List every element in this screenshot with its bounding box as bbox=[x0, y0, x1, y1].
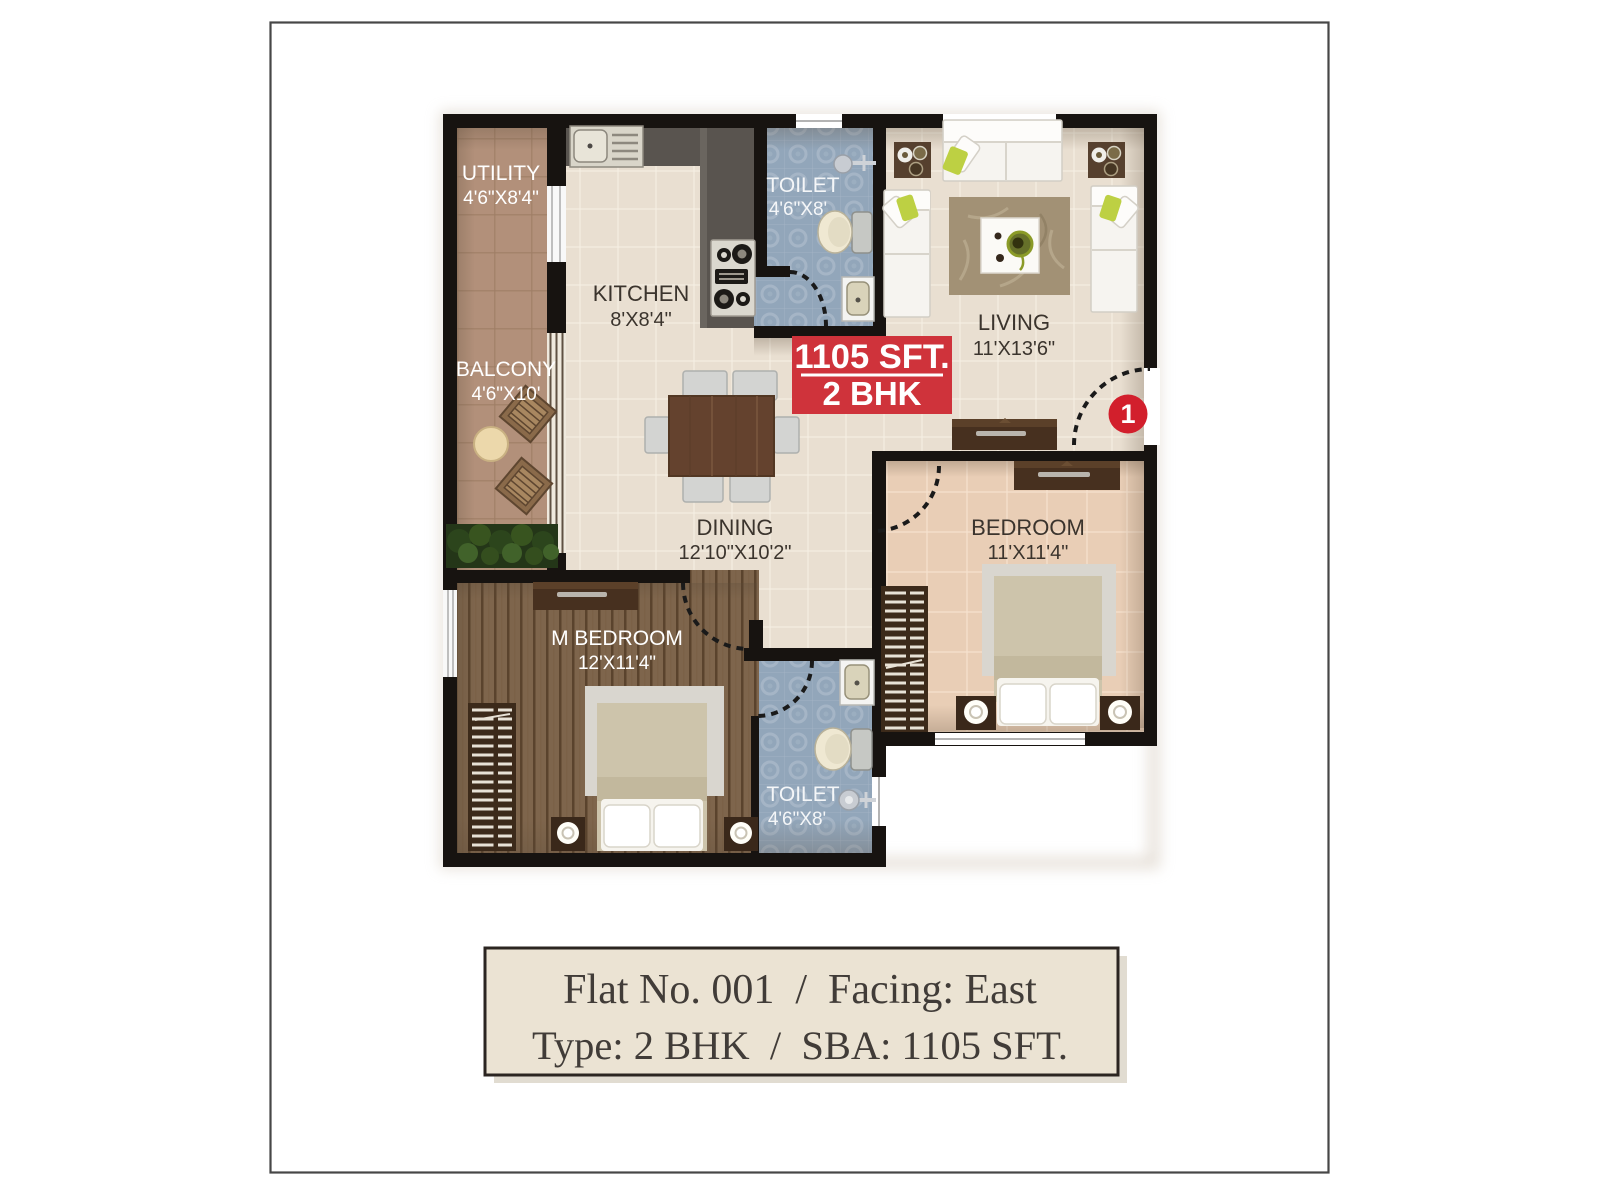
svg-text:TOILET: TOILET bbox=[766, 174, 839, 197]
svg-text:Type: 2 BHK / SBA: 1105 SFT.: Type: 2 BHK / SBA: 1105 SFT. bbox=[532, 1023, 1068, 1068]
svg-text:2 BHK: 2 BHK bbox=[822, 375, 921, 412]
svg-text:BEDROOM: BEDROOM bbox=[971, 515, 1085, 540]
svg-text:1: 1 bbox=[1120, 399, 1135, 429]
svg-text:4'6"X8': 4'6"X8' bbox=[768, 809, 826, 830]
svg-text:UTILITY: UTILITY bbox=[462, 162, 540, 185]
svg-text:LIVING: LIVING bbox=[978, 310, 1050, 335]
svg-text:TOILET: TOILET bbox=[766, 783, 839, 806]
svg-text:11'X13'6": 11'X13'6" bbox=[973, 338, 1055, 360]
svg-text:M BEDROOM: M BEDROOM bbox=[551, 627, 683, 650]
svg-text:4'6"X10': 4'6"X10' bbox=[472, 384, 541, 405]
svg-text:4'6"X8': 4'6"X8' bbox=[769, 199, 827, 220]
svg-text:BALCONY: BALCONY bbox=[456, 358, 556, 381]
svg-text:1105 SFT.: 1105 SFT. bbox=[794, 338, 949, 376]
svg-text:Flat No. 001 / Facing: East: Flat No. 001 / Facing: East bbox=[563, 967, 1037, 1013]
svg-text:12'X11'4": 12'X11'4" bbox=[578, 653, 656, 674]
svg-text:4'6"X8'4": 4'6"X8'4" bbox=[463, 188, 539, 209]
svg-text:8'X8'4": 8'X8'4" bbox=[610, 309, 671, 331]
svg-text:11'X11'4": 11'X11'4" bbox=[988, 542, 1069, 564]
svg-text:DINING: DINING bbox=[697, 515, 774, 540]
svg-text:12'10"X10'2": 12'10"X10'2" bbox=[678, 542, 791, 564]
svg-text:KITCHEN: KITCHEN bbox=[593, 281, 690, 306]
